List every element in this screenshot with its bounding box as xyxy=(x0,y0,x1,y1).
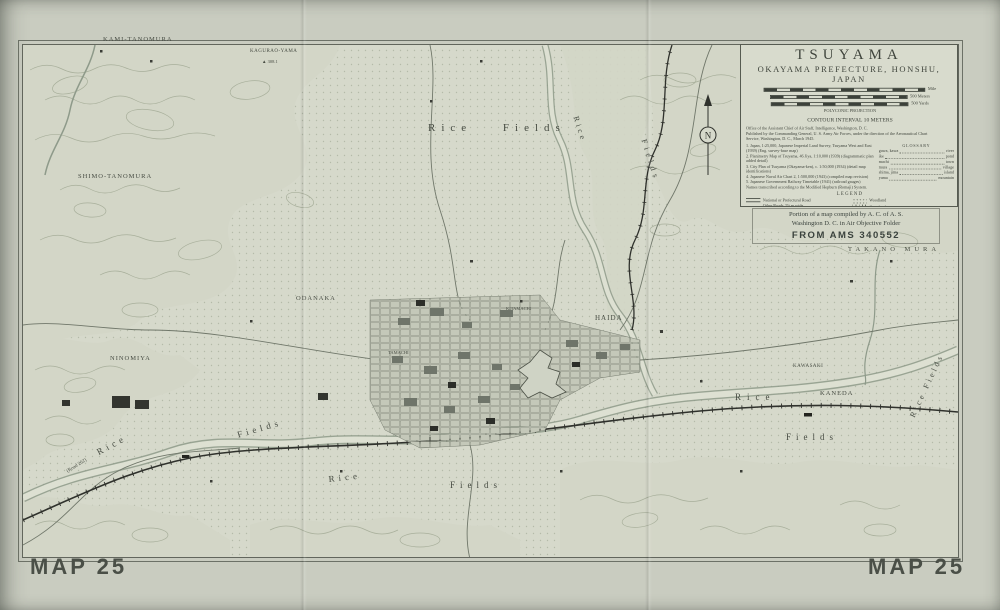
scale-bar-meters: 500 Meters xyxy=(746,94,954,99)
legend-item: Woodland xyxy=(852,198,954,204)
source-note: Names transcribed according to the Modif… xyxy=(746,185,874,190)
scale-bar-miles: Mile xyxy=(746,87,954,92)
projection-note: POLYCONIC PROJECTION xyxy=(746,109,954,115)
elevation-label-3081: ▲ 308.1 xyxy=(262,59,278,64)
map-number-left: MAP 25 xyxy=(30,554,127,580)
stamp-ams-number: FROM AMS 340552 xyxy=(756,230,936,241)
source-note: 2. Planimetry Map of Tsuyama, 46 Jiya, 1… xyxy=(746,154,874,164)
road-symbol xyxy=(746,199,760,203)
place-label-odanaka: ODANAKA xyxy=(296,295,336,302)
source-notes: 1. Japan, 1:25,000, Japanese Imperial La… xyxy=(746,144,874,191)
legend-label: Woodland xyxy=(869,198,886,203)
higashi-tsuyama-station xyxy=(804,413,812,417)
north-letter: N xyxy=(705,131,712,141)
credit-lines: Office of the Assistant Chief of Air Sta… xyxy=(746,127,954,143)
place-label-kawasaki: KAWASAKI xyxy=(793,364,823,369)
scale-bar-yards: 500 Yards xyxy=(746,102,954,107)
woodland-symbol xyxy=(852,198,866,204)
legend-label: Grassland xyxy=(869,205,886,207)
place-label-ninomiya: NINOMIYA xyxy=(110,355,151,362)
legend-label: National or Prefectural Road xyxy=(763,198,811,203)
stamp-line-2: Washington D. C. in Air Objective Folder xyxy=(756,220,936,229)
area-label-rice-east: Rice xyxy=(735,392,776,402)
glossary-definition: mountain xyxy=(938,176,954,181)
glossary-term: yama xyxy=(879,176,888,181)
place-label-kagurao-yama: KAGURAO-YAMA xyxy=(250,49,297,54)
area-label-fields-east: Fields xyxy=(786,432,838,442)
place-label-shimo-tanomura: SHIMO-TANOMURA xyxy=(78,173,152,180)
legend: National or Prefectural Road Other Roads… xyxy=(746,197,954,207)
west-station xyxy=(182,455,189,458)
area-label-fields-s: Fields xyxy=(450,480,502,490)
scale-bar xyxy=(770,95,908,99)
glossary: GLOSSARY gawa, kawariver ikepond machito… xyxy=(874,144,954,191)
legend-item: Other Roads 2½ m wide xyxy=(746,204,848,207)
grassland-symbol xyxy=(852,205,866,207)
legend-item: Grassland xyxy=(852,205,954,207)
map-subtitle: OKAYAMA PREFECTURE, HONSHU, JAPAN xyxy=(746,64,952,84)
glossary-entry: yamamountain xyxy=(879,176,954,181)
title-block-details: Mile 500 Meters 500 Yards POLYCONIC PROJ… xyxy=(746,87,954,207)
legend-label: Other Roads 2½ m wide xyxy=(763,204,803,207)
source-note: 1. Japan, 1:25,000, Japanese Imperial La… xyxy=(746,144,874,154)
road-symbol xyxy=(746,206,760,207)
place-label-kami-tanomura: KAMI-TANOMURA xyxy=(103,36,173,43)
place-label-haida: HAIDA xyxy=(595,314,623,322)
scale-bar xyxy=(771,102,909,106)
district-label-kitamachi: KITAMACHI xyxy=(506,306,531,311)
stamp-line-1: Portion of a map compiled by A. C. of A.… xyxy=(756,211,936,220)
compilation-stamp: Portion of a map compiled by A. C. of A.… xyxy=(752,208,940,244)
title-block: TSUYAMA OKAYAMA PREFECTURE, HONSHU, JAPA… xyxy=(740,44,958,207)
scale-bar-label: Mile xyxy=(928,87,936,92)
district-label-tamachi: TAMACHI xyxy=(388,350,409,355)
scale-bar xyxy=(764,88,926,92)
legend-right-column: Woodland Grassland Rice Fields Densely B… xyxy=(848,197,954,207)
scale-bar-label: 500 Meters xyxy=(910,94,930,99)
place-label-kaneda: KANEDA xyxy=(820,390,853,397)
legend-item: National or Prefectural Road xyxy=(746,198,848,203)
map-sheet-page: N KAMI-TANOMURA KAGURAO-YAMA ▲ 308.1 SHI… xyxy=(0,0,1000,610)
map-number-right: MAP 25 xyxy=(868,554,965,580)
map-title: TSUYAMA xyxy=(746,48,952,64)
contour-interval-note: CONTOUR INTERVAL 10 METERS xyxy=(746,117,954,124)
legend-left-column: National or Prefectural Road Other Roads… xyxy=(746,197,848,207)
credit-line: Service, Washington, D. C., March 1945. xyxy=(746,137,954,142)
place-label-takano-mura: TAKANO MURA xyxy=(848,246,940,253)
scale-bar-label: 500 Yards xyxy=(911,102,929,107)
source-note: 3. City Plan of Tsuyama (Okayama-ken), c… xyxy=(746,165,874,175)
area-label-rice-fields-top: Rice Fields xyxy=(428,122,566,134)
